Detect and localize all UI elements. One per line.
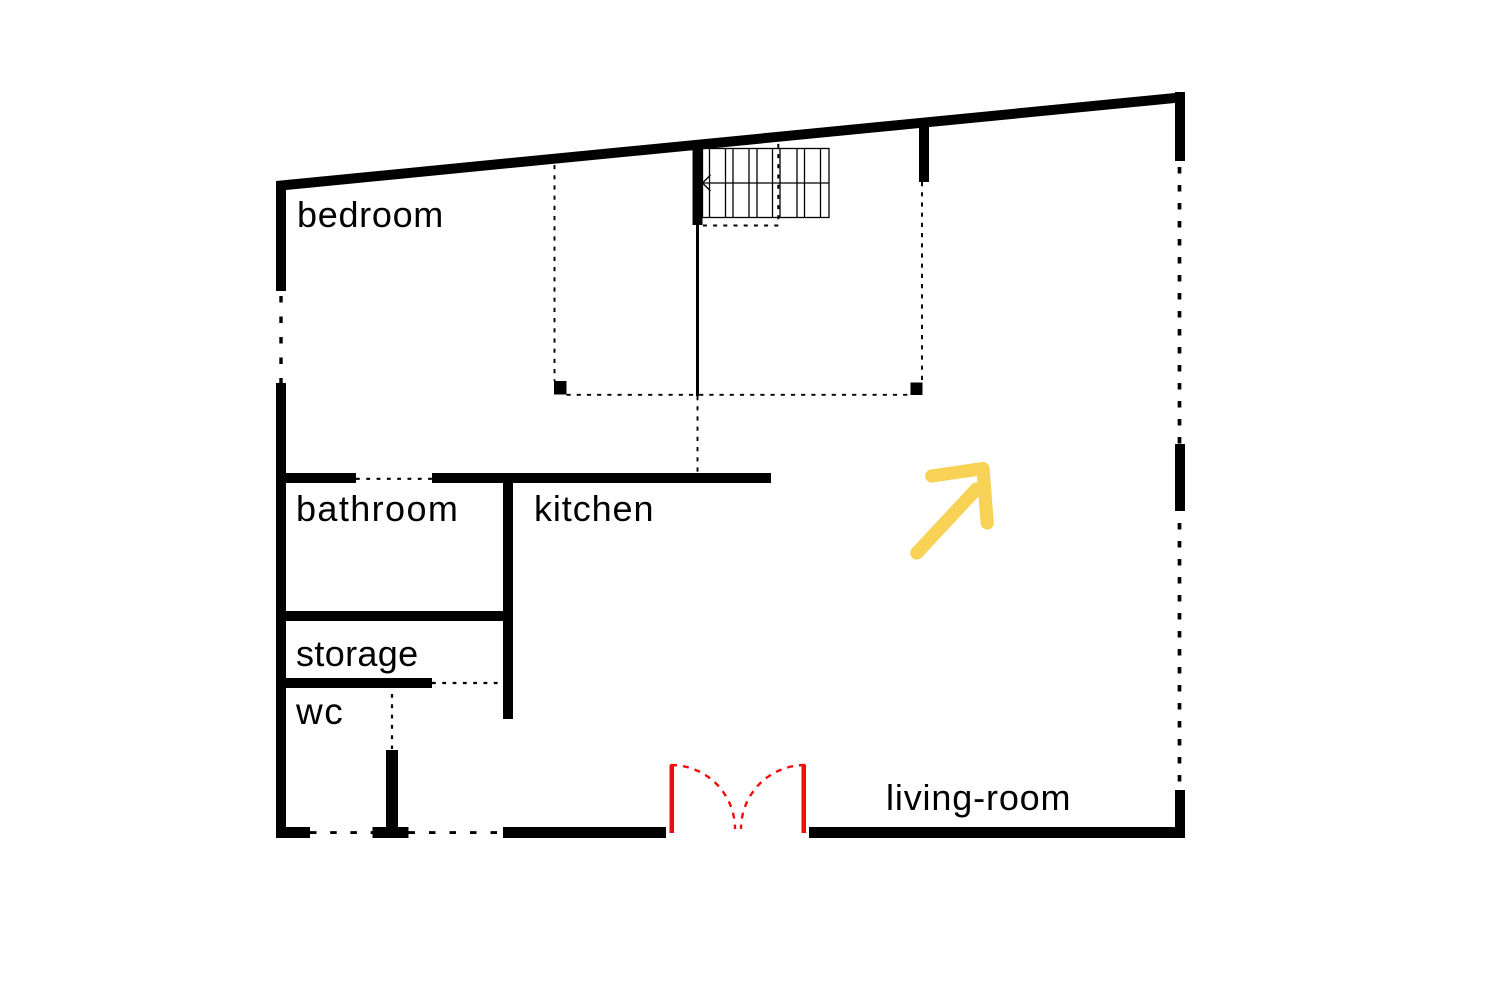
svg-text:bathroom: bathroom bbox=[296, 488, 459, 529]
svg-text:wc: wc bbox=[295, 691, 344, 732]
svg-text:bedroom: bedroom bbox=[297, 194, 444, 235]
svg-text:kitchen: kitchen bbox=[534, 488, 654, 529]
svg-text:living-room: living-room bbox=[886, 777, 1071, 818]
svg-text:storage: storage bbox=[296, 633, 419, 674]
